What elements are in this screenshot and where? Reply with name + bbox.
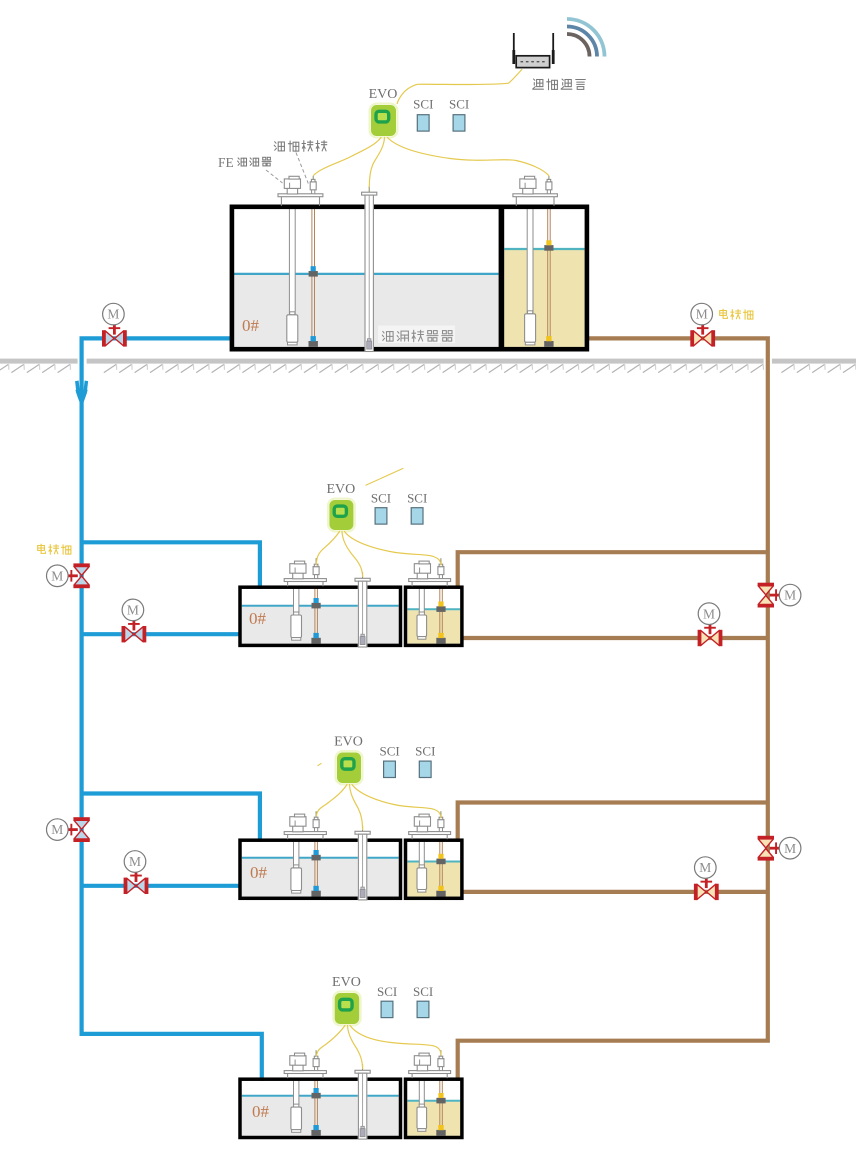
svg-text:EVO: EVO — [369, 87, 398, 102]
svg-text:EVO: EVO — [327, 482, 356, 497]
svg-text:M: M — [107, 307, 119, 322]
svg-text:0#: 0# — [242, 316, 260, 335]
svg-text:SCI: SCI — [377, 984, 397, 999]
svg-text:0#: 0# — [250, 863, 268, 882]
svg-text:M: M — [696, 307, 708, 322]
svg-text:M: M — [51, 822, 63, 837]
svg-text:SCI: SCI — [413, 984, 433, 999]
svg-text:EVO: EVO — [334, 735, 363, 750]
svg-text:0#: 0# — [252, 1102, 270, 1121]
svg-text:SCI: SCI — [449, 97, 469, 112]
svg-text:0#: 0# — [249, 609, 267, 628]
svg-text:SCI: SCI — [415, 744, 435, 759]
svg-text:M: M — [129, 854, 141, 869]
svg-text:SCI: SCI — [371, 491, 391, 506]
svg-text:M: M — [51, 568, 63, 583]
svg-text:M: M — [784, 588, 796, 603]
svg-text:SCI: SCI — [407, 491, 427, 506]
svg-text:M: M — [703, 606, 715, 621]
svg-text:EVO: EVO — [332, 975, 361, 990]
svg-text:M: M — [784, 841, 796, 856]
svg-text:SCI: SCI — [379, 744, 399, 759]
svg-text:FE: FE — [218, 155, 234, 170]
svg-text:M: M — [699, 860, 711, 875]
svg-text:SCI: SCI — [413, 97, 433, 112]
svg-text:M: M — [127, 603, 139, 618]
